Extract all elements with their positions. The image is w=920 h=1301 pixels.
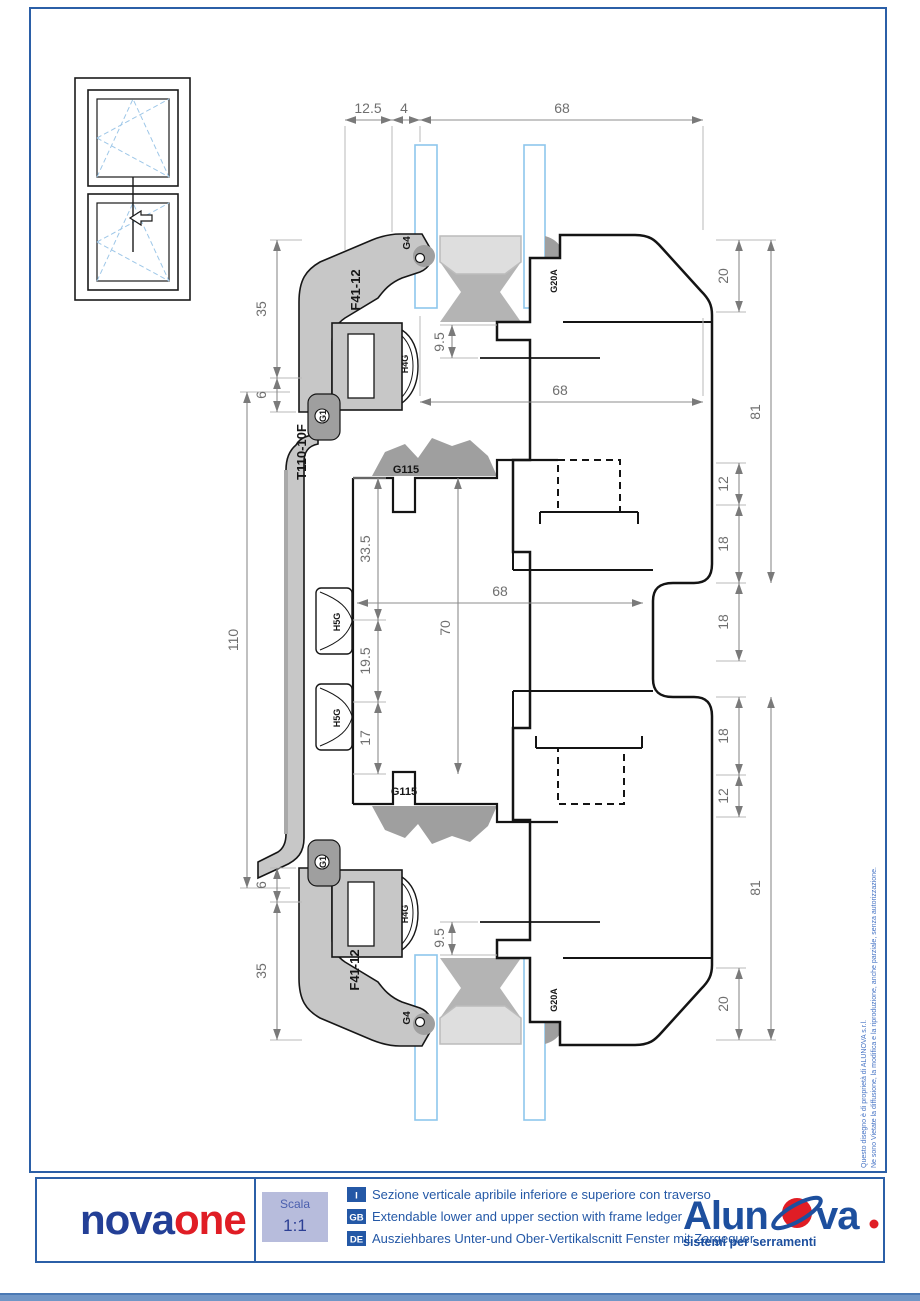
label-h4g-bot: H4G bbox=[400, 905, 410, 924]
dim-35-top: 35 bbox=[253, 301, 269, 317]
page-border bbox=[0, 8, 920, 1301]
dim-18-c: 18 bbox=[715, 728, 731, 744]
description-i: Sezione verticale apribile inferiore e s… bbox=[372, 1187, 711, 1202]
g115-gasket-top bbox=[372, 438, 497, 476]
frame-outer-outline bbox=[497, 235, 712, 1045]
dim-17: 17 bbox=[357, 730, 373, 746]
label-f4112-bot: F41-12 bbox=[347, 949, 362, 990]
drawing-page: 12.5 4 68 68 68 35 6 110 6 35 9.5 9.5 33… bbox=[0, 0, 920, 1301]
dim-68-top: 68 bbox=[554, 100, 570, 116]
g115-gasket-bottom bbox=[372, 806, 497, 844]
brand-logo-novaone: novaone bbox=[80, 1196, 246, 1243]
label-h5g-1: H5G bbox=[332, 613, 342, 632]
alunova-wordmark-right: va bbox=[816, 1194, 860, 1238]
dim-33-5: 33.5 bbox=[357, 535, 373, 562]
title-block: novaone Scala 1:1 I Sezione verticale ap… bbox=[80, 1187, 879, 1249]
label-g20a-bot: G20A bbox=[549, 988, 559, 1012]
dim-81-top: 81 bbox=[747, 404, 763, 420]
alunova-tagline: sistemi per serramenti bbox=[683, 1235, 816, 1249]
label-g20a-top: G20A bbox=[549, 269, 559, 293]
dim-81-bot: 81 bbox=[747, 880, 763, 896]
label-g4-bot: G4 bbox=[402, 1011, 413, 1025]
dim-68-upper: 68 bbox=[552, 382, 568, 398]
dim-18-b: 18 bbox=[715, 614, 731, 630]
dim-9-5-bot: 9.5 bbox=[431, 928, 447, 948]
dim-12-5: 12.5 bbox=[354, 100, 381, 116]
dim-9-5-top: 9.5 bbox=[431, 332, 447, 352]
label-g4-top: G4 bbox=[402, 236, 413, 250]
dim-110: 110 bbox=[225, 629, 241, 652]
copyright-line1: Questo disegno è di proprietà di ALUNOVA… bbox=[861, 1020, 868, 1168]
label-f4112-top: F41-12 bbox=[348, 269, 363, 310]
dim-12-bot: 12 bbox=[715, 788, 731, 804]
brand-novaone-nova: nova bbox=[80, 1196, 176, 1243]
brand-novaone-one: one bbox=[174, 1196, 246, 1243]
copyright-line2: Ne sono Vietate la diffusione, la modifi… bbox=[871, 867, 878, 1168]
copyright-note: Questo disegno è di proprietà di ALUNOVA… bbox=[861, 867, 878, 1168]
scale-label: Scala bbox=[280, 1197, 310, 1211]
gasket-profiles bbox=[258, 234, 564, 1046]
lang-badge-i-label: I bbox=[355, 1191, 358, 1202]
lang-badge-de-label: DE bbox=[350, 1235, 363, 1246]
dim-35-bot: 35 bbox=[253, 963, 269, 979]
dim-19-5: 19.5 bbox=[357, 647, 373, 674]
label-g1-bot: G1 bbox=[318, 856, 328, 868]
dim-12-top: 12 bbox=[715, 476, 731, 492]
scale-value: 1:1 bbox=[283, 1216, 307, 1235]
dim-6-bot: 6 bbox=[253, 881, 269, 889]
window-schematic bbox=[75, 78, 190, 300]
alunova-logo: Alun va sistemi per serramenti bbox=[683, 1193, 879, 1249]
alunova-wordmark-left: Alun bbox=[683, 1194, 768, 1238]
dim-20-top: 20 bbox=[715, 268, 731, 284]
label-g115-top: G115 bbox=[393, 464, 419, 476]
dim-20-bot: 20 bbox=[715, 996, 731, 1012]
dim-68-mid: 68 bbox=[492, 583, 508, 599]
dim-4: 4 bbox=[400, 100, 408, 116]
label-g115-bot: G115 bbox=[391, 786, 417, 798]
technical-drawing-svg: 12.5 4 68 68 68 35 6 110 6 35 9.5 9.5 33… bbox=[0, 0, 920, 1301]
description-gb: Extendable lower and upper section with … bbox=[372, 1209, 683, 1224]
label-g1-top: G1 bbox=[318, 410, 328, 422]
label-t110: T110-10F bbox=[294, 424, 309, 480]
dim-70: 70 bbox=[437, 620, 453, 636]
label-h5g-2: H5G bbox=[332, 709, 342, 728]
lang-badge-gb-label: GB bbox=[349, 1213, 363, 1224]
dim-18-a: 18 bbox=[715, 536, 731, 552]
label-h4g-top: H4G bbox=[400, 355, 410, 374]
glass-panes bbox=[415, 145, 545, 1120]
dim-6-top: 6 bbox=[253, 391, 269, 399]
alunova-period-dot bbox=[870, 1220, 879, 1229]
